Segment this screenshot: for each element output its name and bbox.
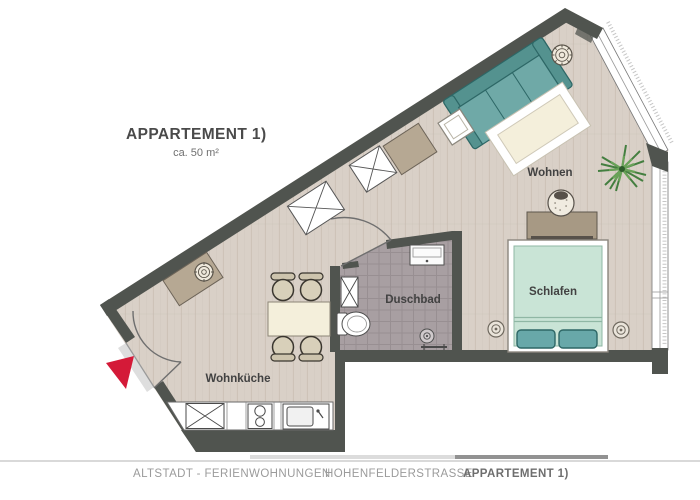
entrance-arrow-icon [106, 356, 134, 389]
footer-nav-altstadt[interactable]: ALTSTADT - FERIENWOHNUNGEN [133, 468, 331, 480]
room-label-bathroom: Duschbad [385, 294, 441, 306]
dresser [527, 212, 597, 244]
ceiling-lamp-right [613, 322, 629, 338]
floor-plan-drawing: Wohnen Schlafen Duschbad Wohnküche [0, 0, 700, 500]
chair-top-right [299, 273, 323, 301]
pillow-left [517, 330, 555, 348]
service-shaft [341, 277, 358, 307]
chair-top-left [271, 273, 295, 301]
room-label-living: Wohnen [527, 167, 572, 179]
ceiling-lamp-left [488, 321, 504, 337]
title-block: APPARTEMENT 1) ca. 50 m² [126, 126, 266, 159]
chair-bottom-right [299, 337, 323, 362]
pillow-right [559, 330, 597, 348]
decor-basket [552, 45, 573, 66]
toilet [337, 312, 370, 336]
plan-shadow-dark [455, 455, 608, 459]
footer-nav-hohenfelderstrasse[interactable]: HOHENFELDERSTRASSE [325, 468, 473, 480]
chair-bottom-left [271, 337, 295, 362]
kitchen-counter [167, 402, 333, 430]
footer-nav-appartement-active[interactable]: APPARTEMENT 1) [463, 468, 569, 480]
window-right [652, 162, 668, 350]
vase [548, 190, 574, 216]
room-label-kitchen: Wohnküche [206, 373, 271, 385]
wall-bath-left [330, 266, 340, 352]
wall-bath-right [452, 231, 462, 352]
bathroom-sink [410, 245, 444, 265]
page-subtitle: ca. 50 m² [126, 147, 266, 159]
shower-drain [420, 329, 434, 343]
room-label-sleeping: Schlafen [529, 286, 577, 298]
dining-table [268, 302, 330, 336]
floor-plan-page: Wohnen Schlafen Duschbad Wohnküche APPAR… [0, 0, 700, 500]
page-title: APPARTEMENT 1) [126, 126, 266, 144]
footer-divider [0, 460, 700, 462]
